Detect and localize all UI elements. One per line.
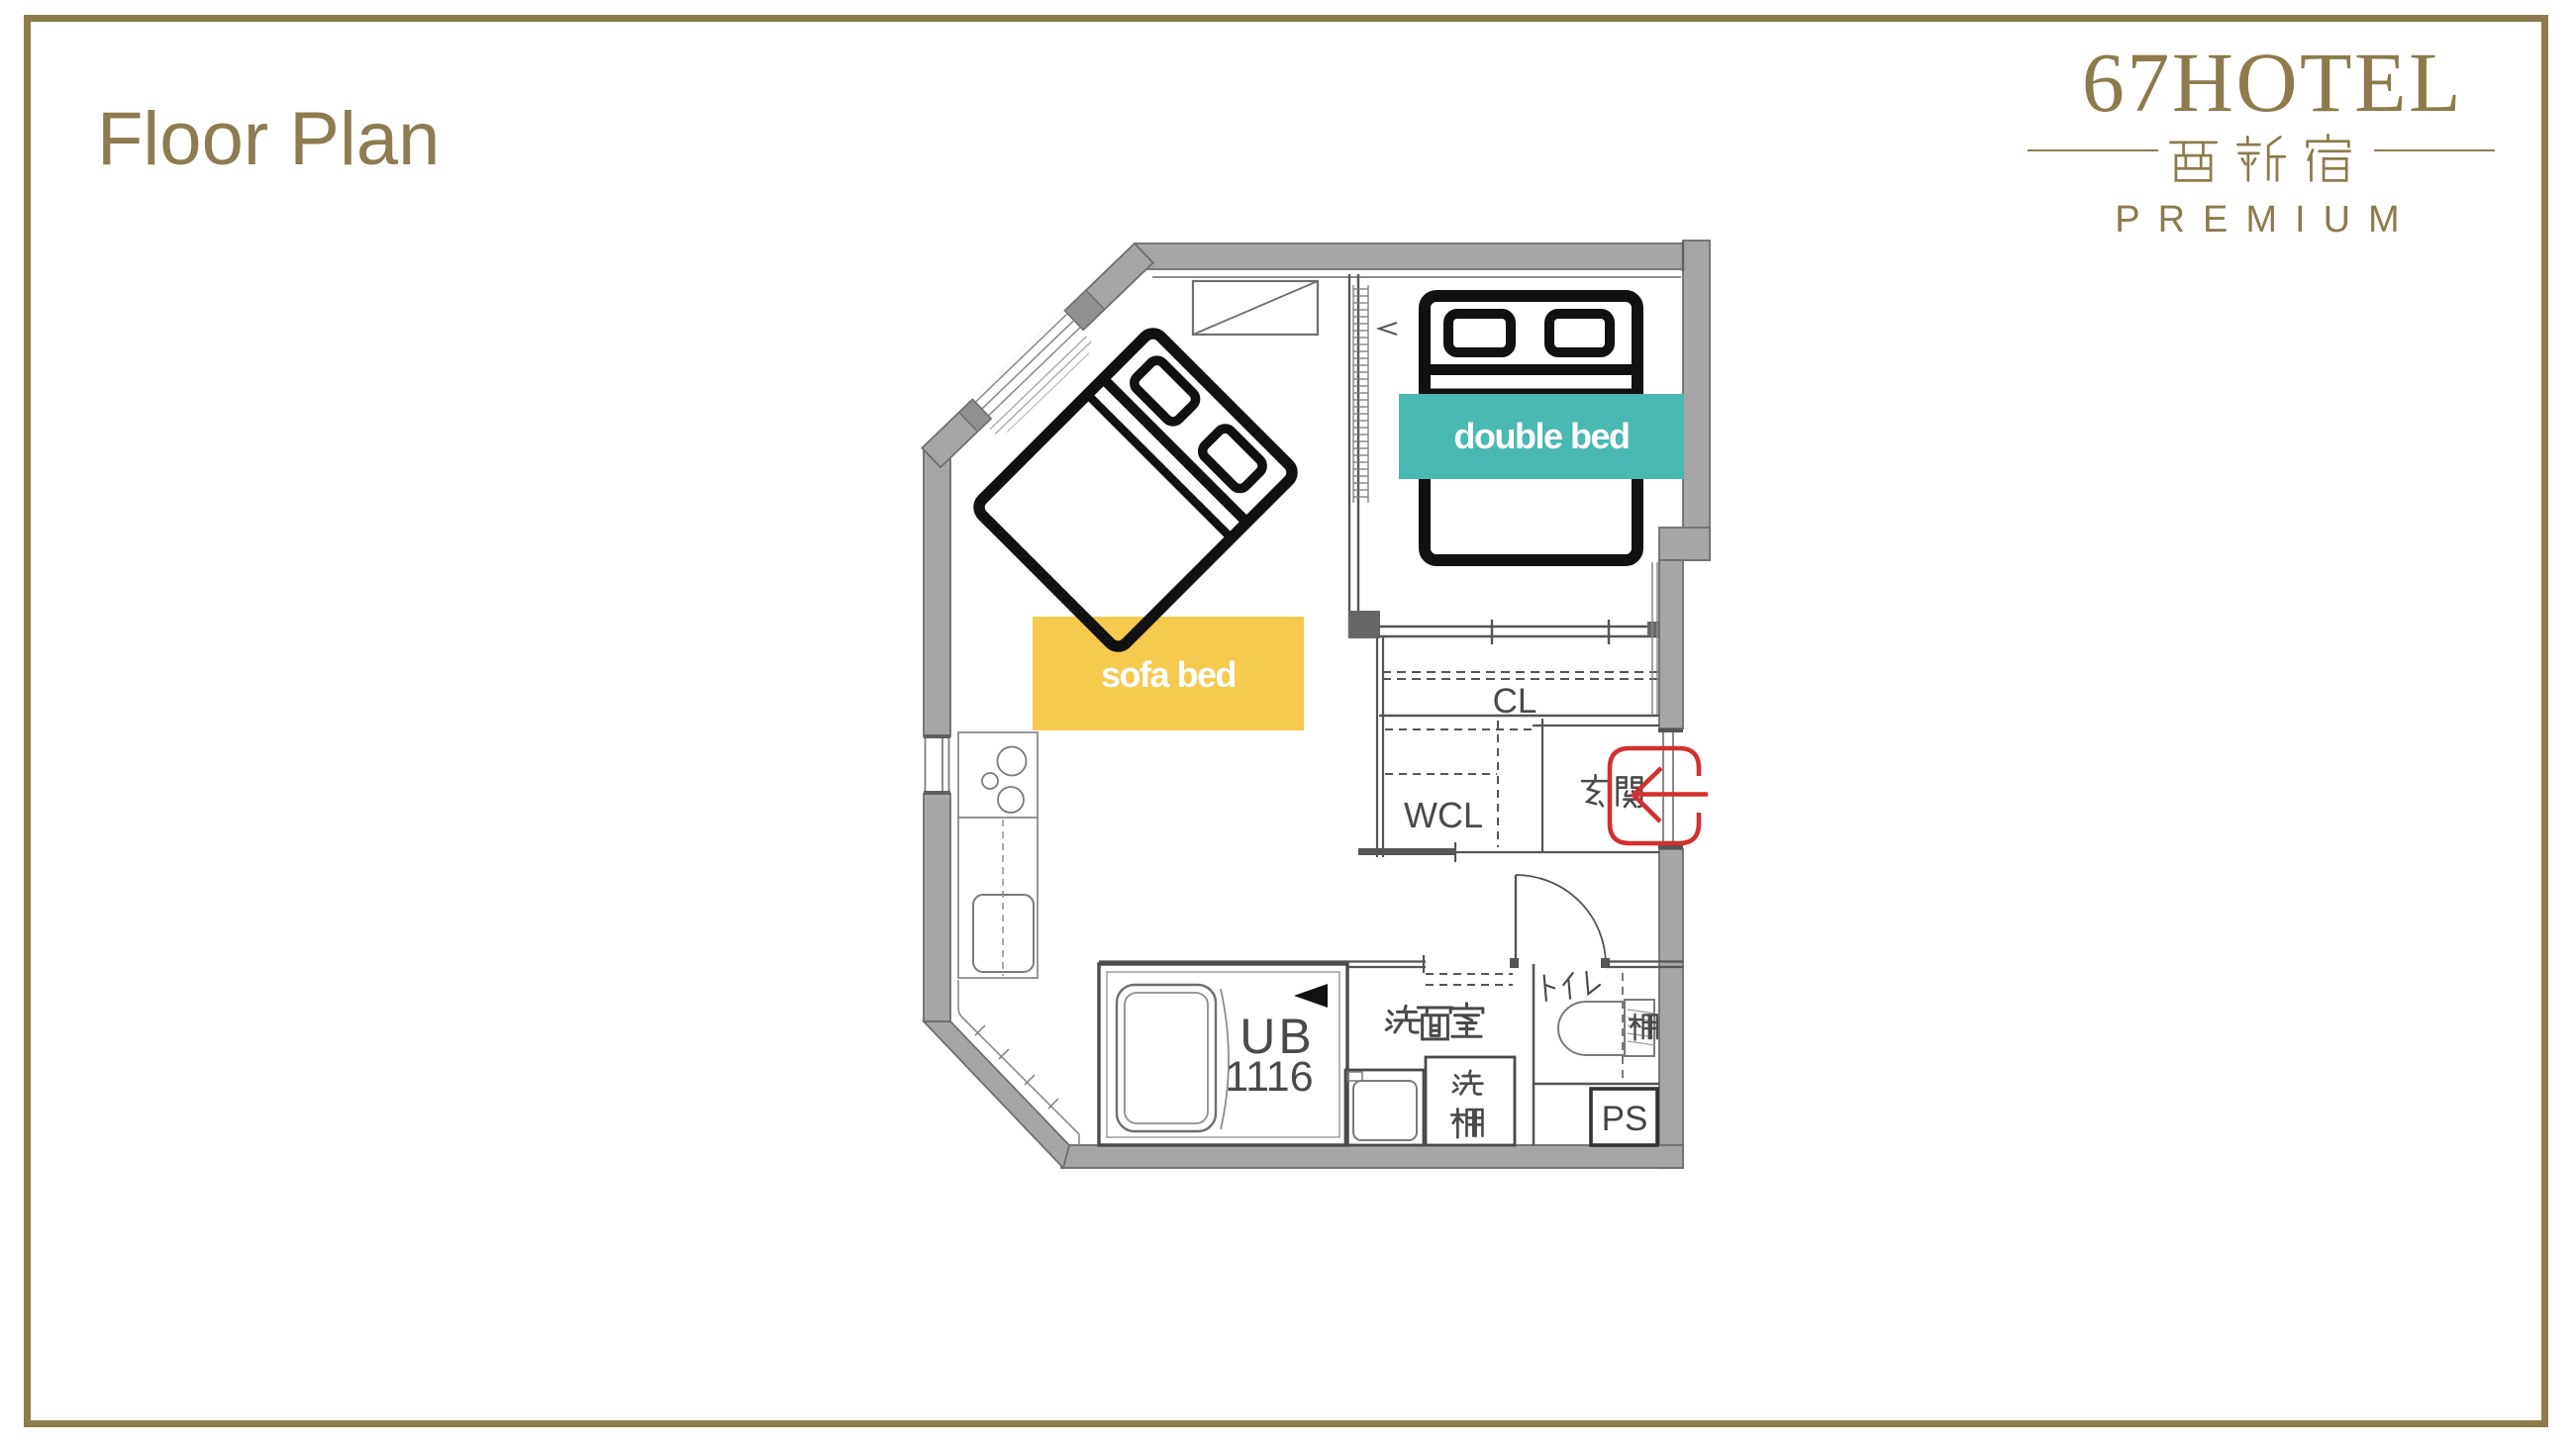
svg-text:WCL: WCL	[1404, 795, 1483, 835]
svg-text:sofa bed: sofa bed	[1101, 654, 1236, 695]
svg-text:PS: PS	[1602, 1100, 1648, 1138]
svg-text:double bed: double bed	[1454, 416, 1630, 456]
svg-text:1116: 1116	[1225, 1053, 1313, 1101]
